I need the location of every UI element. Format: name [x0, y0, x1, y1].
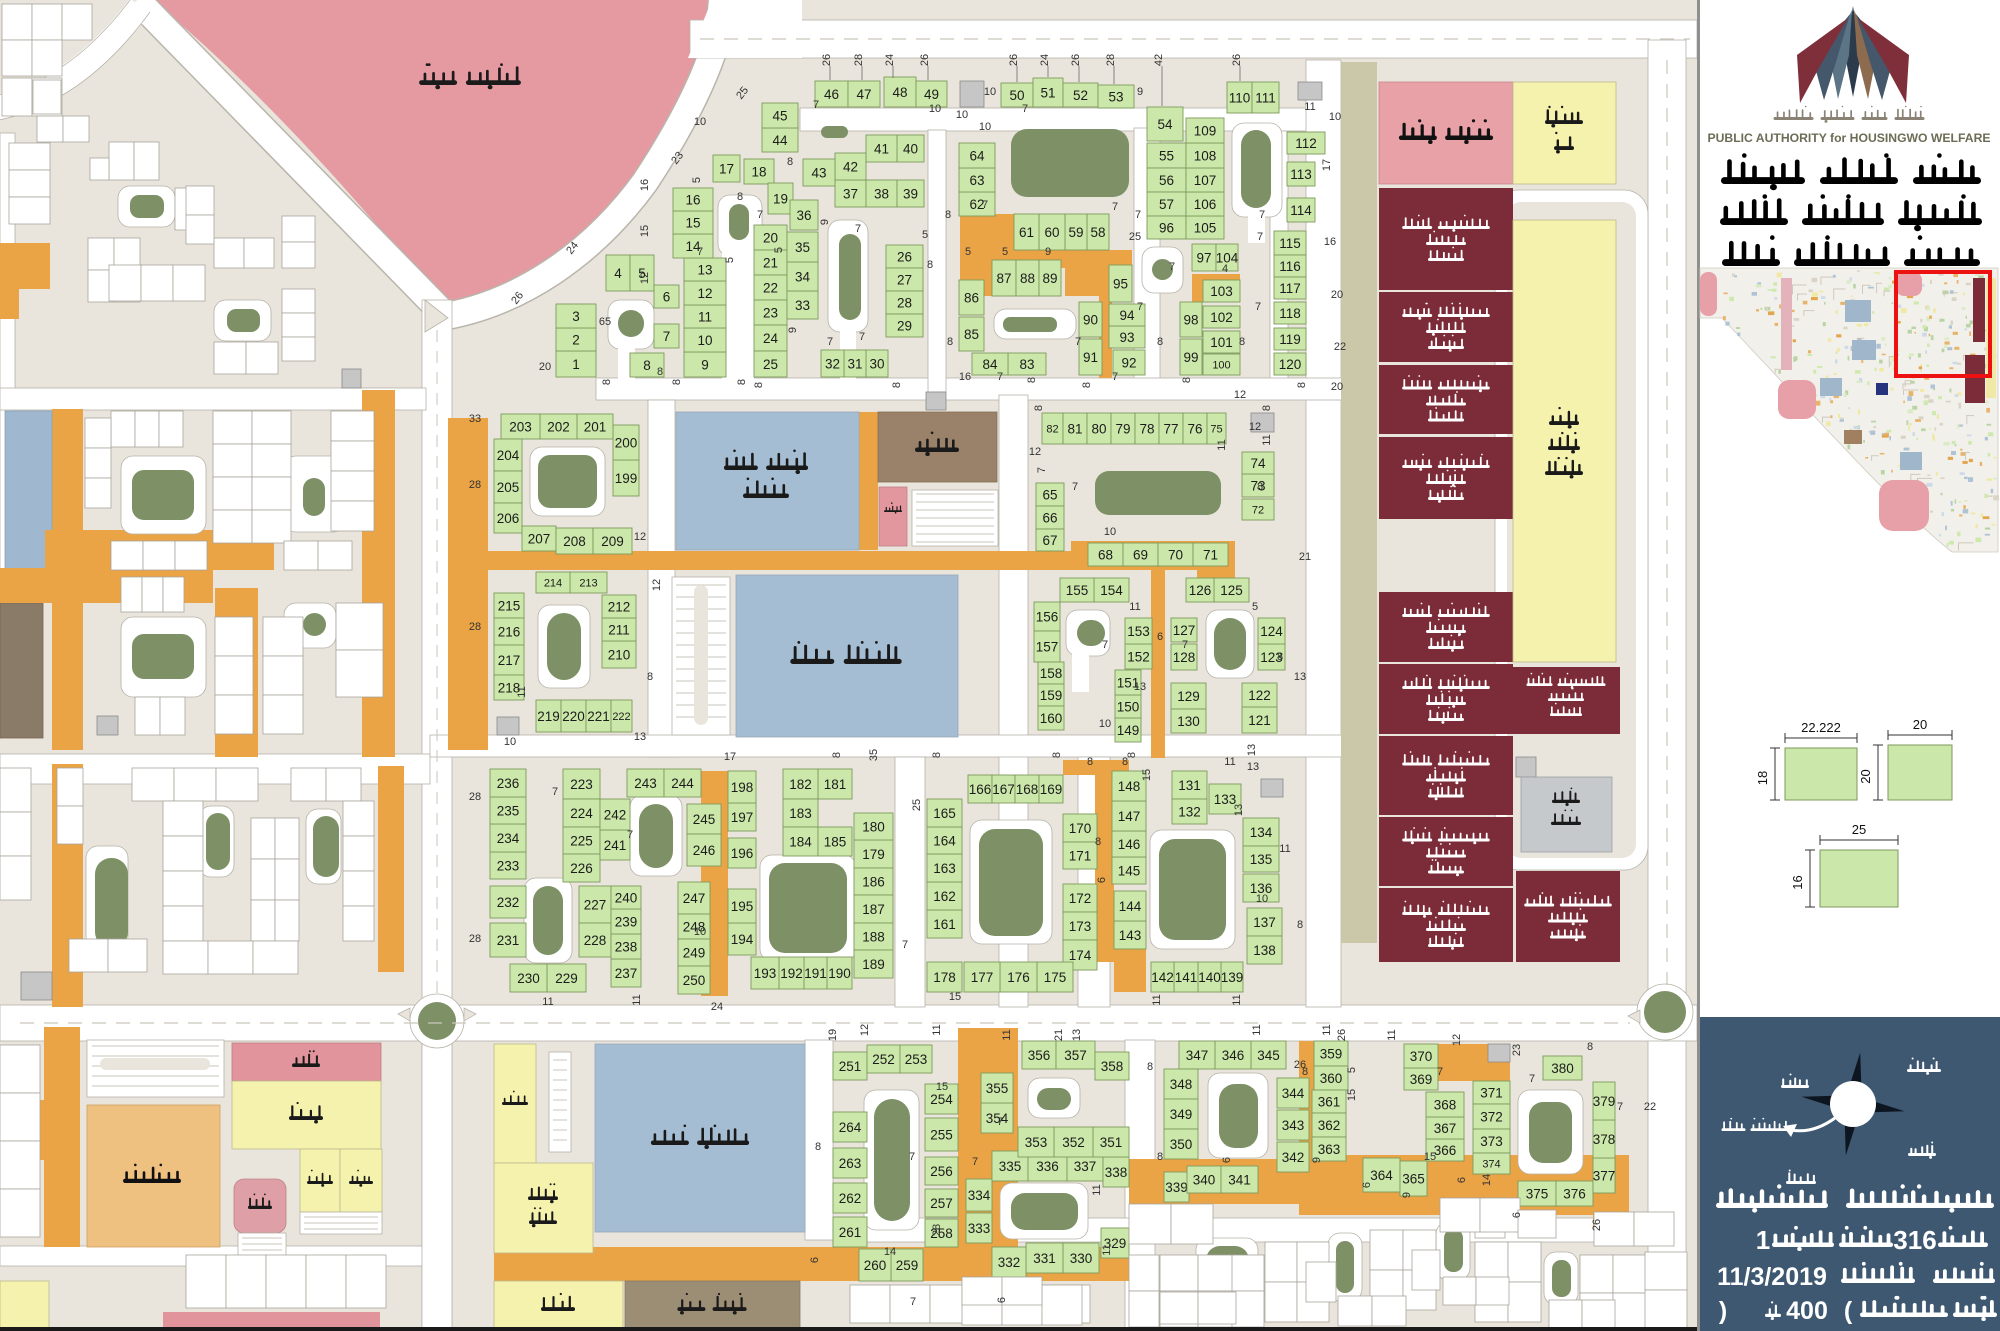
svg-text:138: 138 — [1253, 943, 1276, 958]
svg-text:193: 193 — [754, 966, 777, 981]
svg-text:192: 192 — [780, 966, 803, 981]
svg-text:158: 158 — [1040, 666, 1063, 681]
svg-text:11/3/2019: 11/3/2019 — [1717, 1263, 1827, 1291]
svg-text:241: 241 — [604, 838, 627, 853]
svg-text:235: 235 — [497, 803, 520, 818]
svg-text:336: 336 — [1036, 1159, 1059, 1174]
svg-text:94: 94 — [1119, 308, 1135, 323]
svg-text:7: 7 — [827, 336, 833, 348]
svg-text:7: 7 — [813, 99, 819, 111]
svg-text:53: 53 — [1108, 89, 1123, 104]
svg-text:16: 16 — [685, 192, 700, 207]
svg-text:13: 13 — [1294, 671, 1306, 683]
svg-text:20: 20 — [1858, 769, 1873, 783]
svg-text:6: 6 — [1157, 631, 1163, 643]
svg-text:224: 224 — [570, 806, 593, 821]
svg-text:15: 15 — [685, 215, 700, 230]
svg-text:9: 9 — [1311, 1157, 1323, 1163]
svg-text:46: 46 — [824, 87, 839, 102]
svg-text:8: 8 — [947, 336, 953, 348]
svg-text:173: 173 — [1069, 919, 1092, 934]
svg-text:28: 28 — [469, 479, 481, 491]
svg-text:169: 169 — [1040, 782, 1063, 797]
svg-text:345: 345 — [1257, 1048, 1280, 1063]
svg-text:72: 72 — [1252, 505, 1264, 517]
svg-text:8: 8 — [787, 156, 793, 168]
svg-text:7: 7 — [1135, 209, 1141, 221]
svg-text:142: 142 — [1151, 970, 1174, 985]
svg-text:7: 7 — [972, 1156, 978, 1168]
svg-text:13: 13 — [634, 731, 646, 743]
svg-text:362: 362 — [1318, 1118, 1341, 1133]
svg-text:110: 110 — [1229, 90, 1251, 105]
svg-text:114: 114 — [1290, 203, 1312, 218]
svg-text:216: 216 — [498, 624, 521, 639]
svg-text:358: 358 — [1101, 1059, 1124, 1074]
svg-text:244: 244 — [671, 776, 694, 791]
svg-text:191: 191 — [804, 966, 827, 981]
svg-text:363: 363 — [1318, 1142, 1341, 1157]
svg-text:170: 170 — [1069, 821, 1092, 836]
svg-text:149: 149 — [1117, 723, 1140, 738]
svg-text:234: 234 — [497, 831, 520, 846]
svg-text:): ) — [1719, 1297, 1727, 1325]
svg-text:131: 131 — [1178, 778, 1201, 793]
svg-text:41: 41 — [874, 141, 889, 156]
svg-text:11: 11 — [542, 996, 553, 1008]
svg-text:107: 107 — [1194, 173, 1217, 188]
svg-text:12: 12 — [1249, 421, 1261, 433]
svg-text:102: 102 — [1210, 310, 1233, 325]
svg-text:228: 228 — [584, 933, 607, 948]
svg-text:145: 145 — [1118, 863, 1141, 878]
svg-text:35: 35 — [868, 749, 880, 761]
svg-text:7: 7 — [1255, 301, 1261, 313]
svg-text:8: 8 — [753, 382, 765, 388]
svg-text:119: 119 — [1279, 332, 1301, 347]
svg-text:132: 132 — [1178, 804, 1201, 819]
svg-text:105: 105 — [1194, 220, 1217, 235]
svg-text:202: 202 — [547, 419, 570, 434]
svg-text:8: 8 — [945, 209, 951, 221]
svg-text:93: 93 — [1119, 330, 1134, 345]
svg-text:338: 338 — [1105, 1165, 1128, 1180]
svg-text:59: 59 — [1068, 225, 1083, 240]
svg-text:24: 24 — [884, 54, 896, 66]
svg-text:8: 8 — [647, 671, 653, 683]
svg-text:8: 8 — [1147, 1061, 1153, 1073]
svg-text:80: 80 — [1091, 421, 1106, 436]
svg-text:183: 183 — [789, 806, 812, 821]
svg-text:34: 34 — [795, 269, 811, 284]
svg-text:378: 378 — [1593, 1132, 1616, 1147]
svg-text:181: 181 — [824, 777, 847, 792]
svg-text:78: 78 — [1139, 421, 1154, 436]
svg-text:99: 99 — [1183, 350, 1198, 365]
svg-text:50: 50 — [1009, 88, 1024, 103]
svg-text:74: 74 — [1250, 456, 1266, 471]
svg-text:372: 372 — [1480, 1109, 1503, 1124]
svg-text:215: 215 — [498, 598, 521, 613]
svg-text:8: 8 — [736, 379, 748, 385]
svg-text:7: 7 — [982, 199, 988, 211]
svg-text:140: 140 — [1198, 970, 1221, 985]
svg-text:18: 18 — [1755, 771, 1770, 785]
svg-text:4: 4 — [1222, 263, 1228, 275]
svg-text:361: 361 — [1318, 1094, 1341, 1109]
svg-text:197: 197 — [731, 810, 754, 825]
svg-text:65: 65 — [1042, 487, 1057, 502]
svg-text:84: 84 — [982, 357, 998, 372]
svg-text:359: 359 — [1320, 1046, 1343, 1061]
svg-text:14: 14 — [884, 1246, 896, 1258]
svg-text:178: 178 — [933, 970, 956, 985]
svg-text:380: 380 — [1551, 1061, 1574, 1076]
svg-text:6: 6 — [996, 1297, 1008, 1303]
svg-text:8: 8 — [1261, 405, 1273, 411]
svg-text:257: 257 — [930, 1196, 953, 1211]
svg-text:58: 58 — [1090, 225, 1105, 240]
svg-text:7: 7 — [552, 786, 558, 798]
svg-text:56: 56 — [1159, 173, 1174, 188]
svg-text:206: 206 — [497, 511, 520, 526]
svg-text:26: 26 — [897, 249, 912, 264]
svg-text:203: 203 — [509, 419, 532, 434]
svg-text:25: 25 — [1129, 231, 1141, 243]
svg-text:7: 7 — [1529, 1073, 1535, 1085]
svg-text:351: 351 — [1100, 1135, 1123, 1150]
svg-text:171: 171 — [1069, 848, 1092, 863]
svg-text:17: 17 — [724, 751, 736, 763]
svg-text:51: 51 — [1040, 85, 1055, 100]
svg-text:252: 252 — [872, 1052, 895, 1067]
svg-text:20: 20 — [1913, 717, 1927, 732]
svg-text:137: 137 — [1253, 915, 1276, 930]
svg-text:341: 341 — [1228, 1172, 1251, 1187]
svg-text:175: 175 — [1044, 970, 1067, 985]
svg-text:11: 11 — [1304, 101, 1315, 113]
svg-text:26: 26 — [1070, 54, 1082, 66]
svg-text:7: 7 — [1102, 639, 1108, 651]
svg-text:1: 1 — [572, 357, 580, 372]
svg-text:194: 194 — [731, 932, 754, 947]
svg-text:70: 70 — [1168, 547, 1183, 562]
svg-text:147: 147 — [1118, 809, 1141, 824]
svg-text:7: 7 — [855, 223, 861, 235]
svg-text:28: 28 — [469, 791, 481, 803]
svg-text:344: 344 — [1282, 1086, 1305, 1101]
svg-text:22: 22 — [1644, 1101, 1656, 1113]
svg-text:96: 96 — [1159, 220, 1174, 235]
svg-text:176: 176 — [1007, 970, 1030, 985]
svg-text:12: 12 — [1029, 446, 1041, 458]
svg-text:64: 64 — [969, 148, 985, 163]
svg-text:12: 12 — [697, 286, 712, 301]
svg-text:237: 237 — [615, 966, 638, 981]
svg-text:245: 245 — [693, 812, 716, 827]
svg-text:11: 11 — [1386, 1029, 1398, 1040]
svg-text:211: 211 — [608, 622, 630, 637]
svg-text:367: 367 — [1434, 1121, 1457, 1136]
svg-text:7: 7 — [902, 939, 908, 951]
svg-text:65: 65 — [599, 316, 611, 328]
svg-text:9: 9 — [701, 357, 709, 372]
svg-text:24: 24 — [1039, 54, 1051, 66]
svg-text:20: 20 — [539, 361, 551, 373]
svg-text:153: 153 — [1127, 624, 1150, 639]
svg-text:86: 86 — [964, 290, 979, 305]
svg-text:10: 10 — [694, 926, 706, 938]
svg-text:11: 11 — [631, 994, 643, 1005]
svg-text:26: 26 — [1294, 1059, 1306, 1071]
svg-text:11: 11 — [1101, 1244, 1113, 1255]
svg-text:11: 11 — [516, 686, 528, 697]
svg-text:232: 232 — [497, 895, 520, 910]
svg-text:230: 230 — [517, 971, 540, 986]
svg-text:375: 375 — [1526, 1186, 1549, 1201]
svg-text:3: 3 — [572, 309, 580, 324]
svg-text:16: 16 — [639, 179, 651, 191]
svg-text:11: 11 — [1279, 843, 1290, 855]
svg-text:355: 355 — [986, 1081, 1009, 1096]
svg-text:11: 11 — [1321, 1024, 1333, 1035]
svg-text:264: 264 — [839, 1120, 862, 1135]
svg-text:10: 10 — [1256, 893, 1268, 905]
svg-text:333: 333 — [968, 1221, 991, 1236]
svg-text:20: 20 — [1331, 381, 1343, 393]
svg-text:342: 342 — [1282, 1150, 1305, 1165]
svg-text:98: 98 — [1183, 312, 1198, 327]
svg-text:26: 26 — [1591, 1219, 1603, 1231]
svg-text:201: 201 — [584, 419, 607, 434]
svg-text:190: 190 — [828, 966, 851, 981]
svg-text:246: 246 — [693, 843, 716, 858]
svg-text:31: 31 — [847, 356, 862, 371]
svg-text:227: 227 — [584, 897, 607, 912]
svg-text:5: 5 — [1002, 246, 1008, 258]
svg-text:188: 188 — [862, 929, 885, 944]
svg-text:7: 7 — [997, 1116, 1003, 1128]
svg-text:5: 5 — [1252, 601, 1258, 613]
svg-text:152: 152 — [1127, 649, 1150, 664]
svg-text:7: 7 — [1112, 201, 1118, 213]
svg-text:8: 8 — [643, 358, 651, 373]
svg-text:11: 11 — [1001, 1029, 1013, 1040]
svg-text:83: 83 — [1019, 357, 1034, 372]
svg-text:186: 186 — [862, 874, 885, 889]
svg-text:87: 87 — [996, 271, 1011, 286]
svg-text:8: 8 — [657, 366, 663, 378]
svg-text:340: 340 — [1193, 1172, 1216, 1187]
svg-text:8: 8 — [601, 379, 613, 385]
svg-text:5: 5 — [922, 229, 928, 241]
svg-text:179: 179 — [862, 847, 885, 862]
svg-text:8: 8 — [815, 1141, 821, 1153]
svg-text:177: 177 — [971, 970, 994, 985]
svg-text:100: 100 — [1212, 360, 1230, 372]
svg-text:5: 5 — [1346, 1067, 1358, 1073]
svg-text:7: 7 — [997, 371, 1003, 383]
svg-text:9: 9 — [1137, 86, 1143, 98]
svg-text:106: 106 — [1194, 197, 1217, 212]
svg-text:7: 7 — [910, 1296, 916, 1308]
svg-text:13: 13 — [1246, 744, 1258, 756]
svg-text:126: 126 — [1189, 583, 1212, 598]
svg-text:124: 124 — [1260, 624, 1283, 639]
svg-text:23: 23 — [1511, 1044, 1523, 1056]
svg-text:8: 8 — [1087, 756, 1093, 768]
svg-text:253: 253 — [905, 1052, 928, 1067]
svg-text:371: 371 — [1480, 1085, 1503, 1100]
svg-text:26: 26 — [919, 54, 931, 66]
svg-text:21: 21 — [1053, 1029, 1065, 1041]
svg-text:13: 13 — [1233, 804, 1245, 816]
svg-text:239: 239 — [615, 914, 638, 929]
svg-text:22: 22 — [763, 280, 778, 295]
svg-text:209: 209 — [601, 534, 624, 549]
svg-text:77: 77 — [1163, 421, 1178, 436]
svg-text:242: 242 — [604, 807, 627, 822]
svg-text:373: 373 — [1480, 1134, 1503, 1149]
svg-text:4: 4 — [614, 266, 622, 281]
svg-text:143: 143 — [1119, 928, 1142, 943]
svg-text:66: 66 — [1042, 510, 1057, 525]
svg-text:199: 199 — [615, 471, 638, 486]
svg-text:159: 159 — [1040, 688, 1063, 703]
svg-text:10: 10 — [697, 333, 712, 348]
svg-text:180: 180 — [862, 819, 885, 834]
svg-text:38: 38 — [874, 186, 889, 201]
svg-text:112: 112 — [1295, 136, 1317, 151]
svg-text:33: 33 — [795, 298, 810, 313]
svg-text:335: 335 — [999, 1159, 1022, 1174]
svg-text:44: 44 — [772, 133, 788, 148]
svg-text:109: 109 — [1194, 123, 1217, 138]
svg-text:81: 81 — [1067, 421, 1082, 436]
svg-text:115: 115 — [1279, 236, 1301, 251]
svg-text:91: 91 — [1083, 350, 1098, 365]
svg-text:101: 101 — [1210, 335, 1233, 350]
svg-text:24: 24 — [711, 1001, 723, 1013]
svg-text:11: 11 — [1129, 601, 1140, 613]
svg-text:135: 135 — [1250, 852, 1273, 867]
svg-text:15: 15 — [1346, 1089, 1358, 1101]
svg-text:9: 9 — [1045, 246, 1051, 258]
svg-text:184: 184 — [789, 834, 812, 849]
svg-text:157: 157 — [1036, 639, 1059, 654]
svg-text:10: 10 — [694, 116, 706, 128]
svg-text:357: 357 — [1064, 1048, 1087, 1063]
svg-text:23: 23 — [763, 305, 778, 320]
svg-text:379: 379 — [1593, 1094, 1616, 1109]
svg-text:13: 13 — [697, 262, 712, 277]
svg-text:350: 350 — [1170, 1137, 1193, 1152]
svg-text:198: 198 — [731, 780, 754, 795]
svg-text:238: 238 — [615, 939, 638, 954]
svg-text:2: 2 — [572, 332, 580, 347]
svg-text:255: 255 — [930, 1127, 953, 1142]
svg-text:13: 13 — [1247, 761, 1259, 773]
svg-text:79: 79 — [1115, 421, 1130, 436]
svg-text:8: 8 — [831, 752, 843, 758]
svg-text:90: 90 — [1083, 312, 1098, 327]
svg-text:27: 27 — [897, 272, 912, 287]
svg-text:5: 5 — [773, 247, 785, 253]
svg-text:15: 15 — [1141, 769, 1153, 781]
svg-text:30: 30 — [869, 356, 884, 371]
svg-text:28: 28 — [931, 1224, 943, 1236]
svg-text:1: 1 — [1756, 1225, 1770, 1255]
svg-text:127: 127 — [1173, 623, 1196, 638]
svg-text:20: 20 — [763, 230, 778, 245]
svg-text:7: 7 — [1617, 1101, 1623, 1113]
svg-text:10: 10 — [929, 103, 941, 115]
svg-text:28: 28 — [1105, 54, 1117, 66]
svg-text:6: 6 — [1511, 1212, 1523, 1218]
svg-text:8: 8 — [1122, 756, 1128, 768]
svg-text:117: 117 — [1279, 281, 1301, 296]
svg-text:12: 12 — [639, 272, 651, 284]
svg-text:76: 76 — [1187, 421, 1202, 436]
svg-text:22: 22 — [1334, 341, 1346, 353]
svg-text:88: 88 — [1020, 271, 1035, 286]
svg-text:122: 122 — [1248, 688, 1271, 703]
svg-text:208: 208 — [563, 534, 586, 549]
svg-text:225: 225 — [570, 833, 593, 848]
svg-text:182: 182 — [789, 777, 812, 792]
svg-text:331: 331 — [1033, 1251, 1056, 1266]
svg-text:10: 10 — [984, 86, 996, 98]
svg-text:6: 6 — [1456, 1177, 1468, 1183]
svg-text:7: 7 — [1259, 209, 1265, 221]
svg-text:120: 120 — [1279, 357, 1302, 372]
svg-text:42: 42 — [1153, 54, 1165, 66]
svg-text:28: 28 — [897, 295, 912, 310]
svg-text:68: 68 — [1098, 547, 1113, 562]
svg-text:316: 316 — [1893, 1225, 1936, 1255]
svg-text:349: 349 — [1170, 1107, 1193, 1122]
svg-text:52: 52 — [1073, 88, 1088, 103]
svg-text:214: 214 — [544, 578, 562, 590]
svg-text:9: 9 — [1401, 1192, 1413, 1198]
svg-text:108: 108 — [1194, 148, 1217, 163]
svg-text:236: 236 — [497, 776, 520, 791]
svg-text:12: 12 — [634, 531, 646, 543]
svg-text:57: 57 — [1159, 197, 1174, 212]
svg-text:16: 16 — [1324, 236, 1336, 248]
svg-text:11: 11 — [1251, 1024, 1263, 1035]
svg-text:219: 219 — [537, 709, 560, 724]
svg-text:71: 71 — [1203, 547, 1218, 562]
svg-text:348: 348 — [1170, 1077, 1193, 1092]
svg-text:141: 141 — [1175, 970, 1198, 985]
svg-text:26: 26 — [821, 54, 833, 66]
svg-text:(: ( — [1844, 1297, 1853, 1325]
svg-text:10: 10 — [1099, 718, 1111, 730]
svg-text:360: 360 — [1320, 1071, 1343, 1086]
svg-text:8: 8 — [1296, 382, 1308, 388]
svg-text:20: 20 — [1331, 289, 1343, 301]
svg-text:353: 353 — [1025, 1135, 1048, 1150]
svg-text:368: 368 — [1434, 1097, 1457, 1112]
svg-text:85: 85 — [964, 327, 979, 342]
svg-text:213: 213 — [579, 578, 597, 590]
svg-text:7: 7 — [1075, 336, 1081, 348]
svg-text:11: 11 — [1216, 439, 1228, 450]
svg-text:247: 247 — [683, 891, 706, 906]
svg-text:7: 7 — [1036, 467, 1048, 473]
svg-text:220: 220 — [562, 709, 585, 724]
